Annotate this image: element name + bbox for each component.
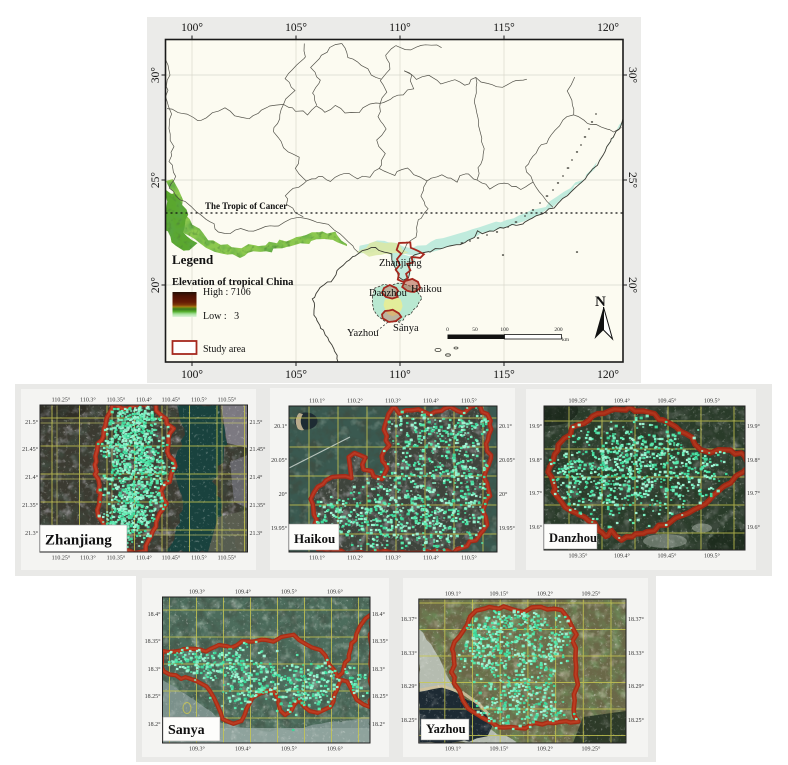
svg-text:109.5°: 109.5°	[704, 553, 721, 560]
svg-text:109.45°: 109.45°	[658, 553, 678, 560]
svg-text:20.1°: 20.1°	[499, 423, 513, 430]
svg-text:km: km	[562, 337, 570, 343]
svg-text:109.5°: 109.5°	[281, 589, 298, 596]
svg-text:109.25°: 109.25°	[582, 591, 602, 598]
svg-text:110.5°: 110.5°	[191, 555, 207, 562]
svg-text:18.37°: 18.37°	[401, 616, 418, 623]
svg-text:20.1°: 20.1°	[274, 423, 288, 430]
svg-text:21.3°: 21.3°	[250, 530, 264, 537]
svg-text:110.5°: 110.5°	[461, 398, 477, 405]
svg-text:21.5°: 21.5°	[25, 419, 39, 426]
svg-text:110.3°: 110.3°	[80, 397, 96, 404]
svg-text:21.45°: 21.45°	[250, 446, 267, 453]
svg-text:110.4°: 110.4°	[423, 555, 439, 562]
svg-text:25°: 25°	[150, 172, 162, 189]
svg-text:109.6°: 109.6°	[327, 746, 344, 753]
svg-text:18.25°: 18.25°	[145, 693, 162, 700]
svg-text:18.4°: 18.4°	[372, 611, 386, 618]
svg-text:109.2°: 109.2°	[537, 746, 554, 753]
svg-text:110.1°: 110.1°	[309, 398, 325, 405]
svg-text:109.1°: 109.1°	[445, 591, 462, 598]
svg-text:Yazhou: Yazhou	[347, 328, 379, 339]
svg-text:110.55°: 110.55°	[218, 397, 237, 404]
svg-text:109.4°: 109.4°	[614, 398, 631, 405]
svg-text:109.1°: 109.1°	[445, 746, 462, 753]
svg-text:19.6°: 19.6°	[747, 524, 761, 531]
svg-text:110.2°: 110.2°	[347, 398, 363, 405]
svg-text:109.3°: 109.3°	[189, 589, 206, 596]
svg-text:30°: 30°	[150, 67, 162, 84]
svg-text:109.5°: 109.5°	[704, 398, 721, 405]
svg-text:20°: 20°	[279, 491, 288, 498]
svg-text:18.29°: 18.29°	[628, 683, 645, 690]
svg-text:110°: 110°	[389, 22, 411, 34]
svg-text:Danzhou: Danzhou	[369, 288, 408, 299]
svg-text:19.95°: 19.95°	[271, 525, 288, 532]
svg-text:109.6°: 109.6°	[327, 589, 344, 596]
svg-text:18.25°: 18.25°	[401, 717, 418, 724]
svg-text:110.1°: 110.1°	[309, 555, 325, 562]
svg-text:110.45°: 110.45°	[162, 397, 181, 404]
svg-text:Legend: Legend	[172, 252, 214, 267]
svg-text:18.3°: 18.3°	[148, 666, 162, 673]
svg-text:21.4°: 21.4°	[250, 474, 264, 481]
svg-text:19.7°: 19.7°	[747, 490, 761, 497]
svg-text:19.8°: 19.8°	[529, 457, 543, 464]
svg-text:109.15°: 109.15°	[490, 746, 510, 753]
svg-text:21.35°: 21.35°	[22, 502, 39, 509]
svg-text:21.35°: 21.35°	[250, 502, 267, 509]
svg-text:110.4°: 110.4°	[136, 555, 152, 562]
svg-text:18.33°: 18.33°	[628, 650, 645, 657]
svg-text:18.4°: 18.4°	[148, 611, 162, 618]
svg-text:20°: 20°	[150, 277, 162, 294]
svg-text:109.15°: 109.15°	[490, 591, 510, 598]
svg-text:18.35°: 18.35°	[372, 638, 389, 645]
svg-text:19.9°: 19.9°	[529, 423, 543, 430]
svg-text:110°: 110°	[389, 369, 411, 381]
svg-text:109.5°: 109.5°	[281, 746, 298, 753]
svg-text:Haikou: Haikou	[294, 531, 335, 546]
svg-text:110.2°: 110.2°	[347, 555, 363, 562]
svg-text:0: 0	[446, 327, 449, 333]
svg-text:110.5°: 110.5°	[461, 555, 477, 562]
svg-text:109.4°: 109.4°	[614, 553, 631, 560]
svg-text:105°: 105°	[285, 369, 307, 381]
svg-text:30°: 30°	[626, 67, 638, 84]
svg-text:The Tropic of Cancer: The Tropic of Cancer	[205, 201, 287, 211]
svg-text:200: 200	[554, 327, 563, 333]
svg-text:Sanya: Sanya	[393, 323, 419, 334]
svg-text:25°: 25°	[626, 172, 638, 189]
svg-text:18.29°: 18.29°	[401, 683, 418, 690]
svg-text:120°: 120°	[597, 22, 619, 34]
svg-text:18.3°: 18.3°	[372, 666, 386, 673]
svg-text:109.3°: 109.3°	[189, 746, 206, 753]
svg-text:115°: 115°	[493, 369, 515, 381]
svg-text:110.45°: 110.45°	[162, 555, 181, 562]
svg-text:120°: 120°	[597, 369, 619, 381]
svg-text:50: 50	[472, 327, 478, 333]
svg-text:105°: 105°	[285, 22, 307, 34]
svg-text:19.7°: 19.7°	[529, 490, 543, 497]
svg-text:19.95°: 19.95°	[499, 525, 516, 532]
svg-text:18.33°: 18.33°	[401, 650, 418, 657]
svg-text:18.2°: 18.2°	[148, 721, 162, 728]
svg-text:100°: 100°	[181, 369, 203, 381]
svg-text:20°: 20°	[626, 277, 638, 294]
svg-text:109.35°: 109.35°	[569, 398, 589, 405]
svg-text:110.35°: 110.35°	[107, 555, 126, 562]
svg-text:100: 100	[500, 327, 509, 333]
svg-text:20°: 20°	[499, 491, 508, 498]
svg-text:Study area: Study area	[203, 344, 246, 355]
svg-text:110.55°: 110.55°	[218, 555, 237, 562]
svg-text:Haikou: Haikou	[411, 284, 443, 295]
svg-text:110.3°: 110.3°	[80, 555, 96, 562]
svg-text:18.25°: 18.25°	[372, 693, 389, 700]
svg-text:18.37°: 18.37°	[628, 616, 645, 623]
svg-text:115°: 115°	[493, 22, 515, 34]
svg-text:Sanya: Sanya	[168, 723, 205, 738]
svg-text:110.25°: 110.25°	[52, 555, 71, 562]
svg-text:100°: 100°	[181, 22, 203, 34]
svg-text:21.4°: 21.4°	[25, 474, 39, 481]
svg-text:109.2°: 109.2°	[537, 591, 554, 598]
svg-text:109.25°: 109.25°	[582, 746, 602, 753]
svg-text:18.2°: 18.2°	[372, 721, 386, 728]
svg-text:Danzhou: Danzhou	[549, 531, 597, 545]
svg-text:Zhanjiang: Zhanjiang	[379, 258, 422, 269]
svg-text:20.05°: 20.05°	[271, 457, 288, 464]
svg-text:Zhanjiang: Zhanjiang	[45, 533, 112, 549]
svg-text:21.5°: 21.5°	[250, 419, 264, 426]
svg-text:19.6°: 19.6°	[529, 524, 543, 531]
svg-text:19.9°: 19.9°	[747, 423, 761, 430]
svg-text:20.05°: 20.05°	[499, 457, 516, 464]
svg-text:109.45°: 109.45°	[658, 398, 678, 405]
svg-text:18.35°: 18.35°	[145, 638, 162, 645]
svg-text:110.4°: 110.4°	[136, 397, 152, 404]
svg-text:21.3°: 21.3°	[25, 530, 39, 537]
svg-text:N: N	[595, 294, 606, 310]
svg-text:Low : 3: Low : 3	[203, 311, 239, 322]
svg-text:109.4°: 109.4°	[235, 589, 252, 596]
svg-text:High : 7106: High : 7106	[203, 287, 251, 298]
svg-text:109.35°: 109.35°	[569, 553, 589, 560]
svg-text:110.25°: 110.25°	[52, 397, 71, 404]
svg-text:21.45°: 21.45°	[22, 446, 39, 453]
svg-text:110.5°: 110.5°	[191, 397, 207, 404]
svg-text:109.4°: 109.4°	[235, 746, 252, 753]
svg-text:110.3°: 110.3°	[385, 398, 401, 405]
svg-text:110.3°: 110.3°	[385, 555, 401, 562]
svg-text:110.4°: 110.4°	[423, 398, 439, 405]
svg-text:110.35°: 110.35°	[107, 397, 126, 404]
svg-text:19.8°: 19.8°	[747, 457, 761, 464]
svg-text:18.25°: 18.25°	[628, 717, 645, 724]
svg-text:Yazhou: Yazhou	[426, 722, 466, 736]
